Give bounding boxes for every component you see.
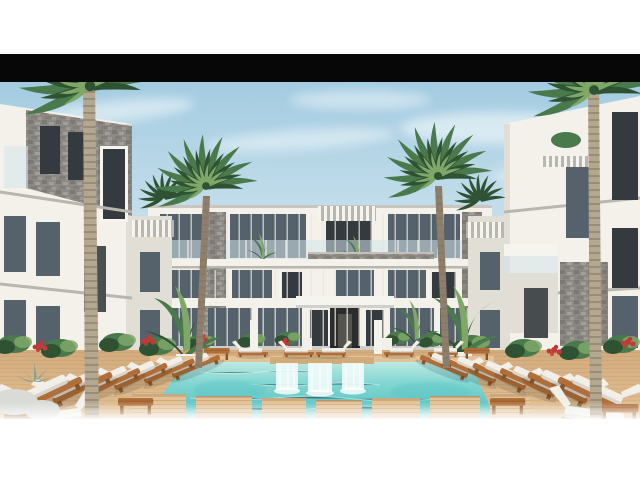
letterbox-bar <box>0 54 640 82</box>
shower-board <box>374 320 382 354</box>
pergola <box>318 206 376 221</box>
window <box>140 252 160 292</box>
stone-balcony-cap <box>308 252 434 254</box>
resort-render-photo <box>0 0 640 480</box>
dark-panel <box>524 288 548 338</box>
foam <box>306 390 334 397</box>
foam <box>340 388 366 395</box>
entrance-canopy <box>296 296 394 305</box>
window <box>612 228 638 288</box>
canopy-shadow <box>296 305 394 308</box>
waterfall-stream <box>342 363 364 390</box>
terrace-plant <box>551 132 581 148</box>
balcony-canopy <box>504 244 558 256</box>
awning <box>128 220 174 237</box>
window <box>4 216 26 272</box>
screenshot-canvas <box>0 0 640 480</box>
awning <box>540 156 592 167</box>
balcony-glass <box>4 146 28 188</box>
foam <box>274 388 300 395</box>
window <box>40 126 60 174</box>
white-pot <box>382 338 392 350</box>
photo-bottom-fade <box>0 402 640 421</box>
waterfall-stream <box>276 363 298 390</box>
bottom-margin <box>0 419 640 480</box>
balcony-glass <box>504 256 558 273</box>
waterfalls <box>274 363 366 397</box>
window <box>612 112 638 200</box>
window <box>36 222 60 276</box>
window <box>480 252 500 290</box>
cloud <box>290 91 430 109</box>
